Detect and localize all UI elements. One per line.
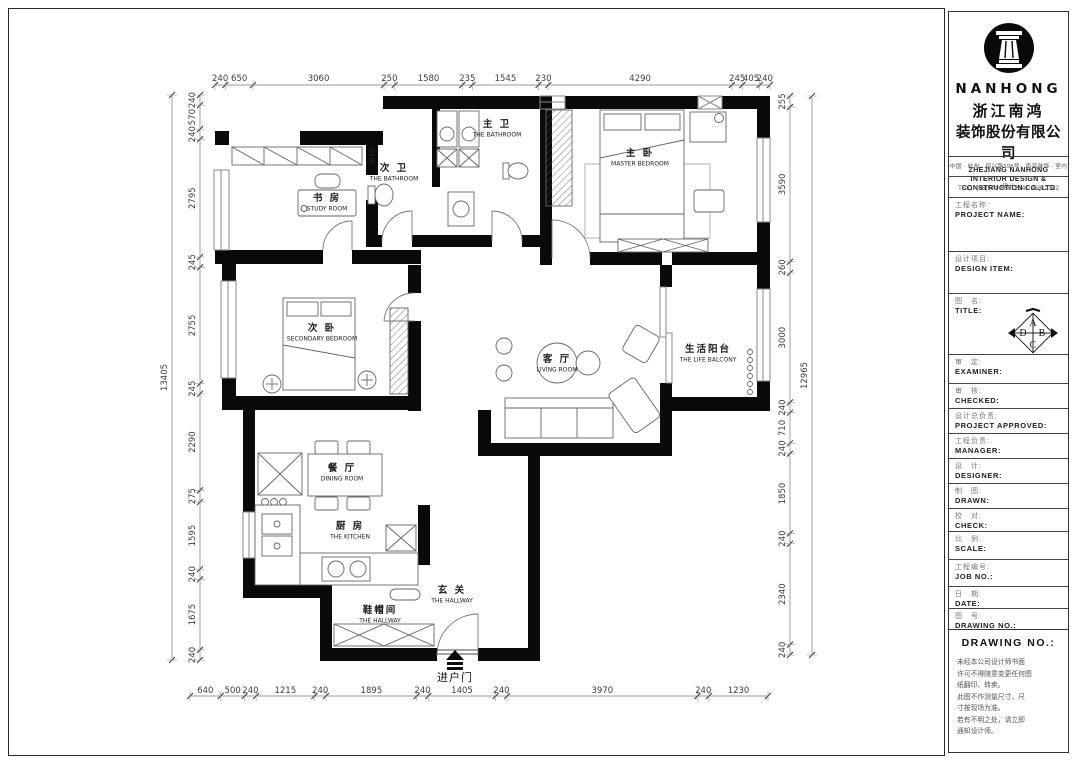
dim-value: 240 [188, 647, 198, 663]
field-label-en: DESIGN ITEM: [955, 264, 1068, 274]
dim-value: 13405 [160, 364, 170, 391]
dim-chain: 2406503060250158023515452304290245405240 [212, 74, 773, 90]
dim-value: 1545 [495, 74, 517, 84]
dim-value: 240 [312, 686, 328, 696]
field-label-zh: 设计总负责: [955, 412, 1068, 421]
dim-value: 570 [188, 109, 198, 125]
room-name-zh: 厨 房 [336, 520, 364, 532]
field-row-manager: 工程负责:MANAGER: [949, 433, 1068, 458]
dimension-annotations: 2406503060250158023515452304290245405240… [160, 74, 817, 701]
dim-value: 275 [188, 488, 198, 504]
field-row-project-approved: 设计总负责:PROJECT APPROVED: [949, 408, 1068, 433]
note-line: 寸按现场为准。 [957, 703, 1064, 715]
field-row-job-no: 工程编号:JOB NO.: [949, 559, 1068, 586]
dim-value: 240 [242, 686, 258, 696]
floor-plan-svg: 2406503060250158023515452304290245405240… [8, 8, 944, 756]
field-row-drawing-no: 图 号:DRAWING NO.: [949, 608, 1068, 629]
field-label-en: PROJECT APPROVED: [955, 421, 1068, 431]
note-line: 许可不得随意变更任何图 [957, 669, 1064, 681]
dim-value: 1850 [778, 483, 788, 505]
room-name-en: THE LIFE BALCONY [679, 357, 737, 364]
logo-text: NANHONG [949, 81, 1068, 97]
orientation-compass-icon: ABCD [1006, 306, 1060, 354]
room-name-zh: 鞋帽间 [363, 604, 398, 616]
dim-value: 710 [778, 420, 788, 436]
note-line: 未经本公司设计师书面 [957, 657, 1064, 669]
dim-value: 240 [414, 686, 430, 696]
dim-value: 1405 [451, 686, 473, 696]
field-row-title: 图 名:TITLE:ABCD [949, 293, 1068, 354]
dim-value: 255 [778, 93, 788, 109]
room-name-en: LIVING ROOM [537, 367, 578, 374]
note-line: 此图不作测量尺寸，尺 [957, 692, 1064, 704]
field-row-project-name: 工程名称:PROJECT NAME: [949, 197, 1068, 251]
dim-value: 240 [493, 686, 509, 696]
dim-chain: 2553590260300024071024018502402340240 [778, 93, 795, 658]
note-line: 若有不明之处，请立即 [957, 715, 1064, 727]
dim-value: 240 [188, 92, 198, 108]
dim-value: 1895 [361, 686, 383, 696]
room-name-en: MASTER BEDROOM [611, 161, 669, 168]
compass-letter: B [1039, 328, 1046, 339]
dim-value: 240 [188, 126, 198, 142]
dim-value: 12965 [800, 362, 810, 389]
field-label-zh: 工程编号: [955, 563, 1068, 572]
room-name-zh: 生活阳台 [685, 343, 731, 355]
furniture [232, 110, 753, 646]
dim-chain: 12965 [800, 93, 817, 658]
column-icon [983, 22, 1035, 74]
field-label-zh: 日 期: [955, 590, 1068, 599]
dim-chain: 6405002401215240189524014052403970240123… [187, 686, 771, 701]
dim-value: 245 [188, 381, 198, 397]
field-label-zh: 设计项目: [955, 255, 1068, 264]
room-name-zh: 次 卧 [308, 322, 336, 334]
compass-letter: A [1029, 318, 1037, 329]
field-label-zh: 工程名称: [955, 201, 1068, 210]
room-label-the-hallway: 玄 关THE HALLWAY [430, 584, 473, 605]
dim-value: 240 [778, 530, 788, 546]
field-label-en: DATE: [955, 599, 1068, 608]
drawing-sheet: 2406503060250158023515452304290245405240… [0, 0, 1080, 764]
dim-value: 240 [778, 440, 788, 456]
dim-value: 3970 [592, 686, 614, 696]
room-name-en: THE BATHROOM [472, 132, 522, 139]
note-line: 纸翻印、转卖。 [957, 680, 1064, 692]
drawing-no-header: DRAWING NO.: [949, 629, 1068, 655]
room-name-en: SECONDARY BEDROOM [287, 336, 357, 343]
field-row-examiner: 审 定:EXAMINER: [949, 354, 1068, 383]
dim-value: 3060 [308, 74, 330, 84]
dim-value: 235 [459, 74, 475, 84]
room-label-the-life-balcony: 生活阳台THE LIFE BALCONY [679, 343, 737, 364]
dim-value: 1230 [728, 686, 750, 696]
dim-value: 240 [188, 566, 198, 582]
room-name-zh: 客 厅 [542, 353, 571, 365]
compass-letter: C [1030, 340, 1037, 351]
dim-value: 4290 [629, 74, 651, 84]
room-name-en: THE KITCHEN [329, 534, 370, 541]
dim-value: 3590 [778, 174, 788, 196]
dim-value: 250 [381, 74, 397, 84]
dim-value: 240 [778, 642, 788, 658]
dim-value: 240 [757, 74, 773, 84]
room-name-zh: 次 卫 [380, 162, 408, 174]
field-label-en: PROJECT NAME: [955, 210, 1068, 220]
field-label-zh: 设 计: [955, 462, 1068, 471]
dim-value: 230 [535, 74, 551, 84]
compass-letter: D [1019, 328, 1026, 339]
field-label-en: DRAWN: [955, 496, 1068, 506]
company-name-zh-1: 浙江南鸿 [949, 100, 1068, 121]
field-label-zh: 比 例: [955, 535, 1068, 544]
room-name-en: THE BATHROOM [369, 176, 419, 183]
field-label-en: DRAWING NO.: [955, 621, 1068, 629]
field-label-en: CHECKED: [955, 396, 1068, 406]
company-logo-block: NANHONG 浙江南鸿 装饰股份有限公司 ZHEJIANG NANHONG I… [949, 12, 1068, 156]
field-row-checked: 审 核:CHECKED: [949, 383, 1068, 408]
field-label-en: CHECK: [955, 521, 1068, 531]
title-block-notes: 未经本公司设计师书面许可不得随意变更任何图纸翻印、转卖。此图不作测量尺寸，尺寸按… [957, 657, 1064, 738]
field-label-zh: 工程负责: [955, 437, 1068, 446]
dim-value: 245 [188, 254, 198, 270]
field-row-design-item: 设计项目:DESIGN ITEM: [949, 251, 1068, 293]
dim-value: 240 [778, 399, 788, 415]
dim-chain: 13405 [160, 92, 177, 663]
room-name-zh: 主 卧 [626, 147, 654, 159]
field-label-en: EXAMINER: [955, 367, 1068, 377]
note-line: 通知设计师。 [957, 726, 1064, 738]
floor-plan-area: 2406503060250158023515452304290245405240… [8, 8, 944, 756]
dim-value: 1580 [418, 74, 440, 84]
field-label-en: DESIGNER: [955, 471, 1068, 481]
dim-value: 2290 [188, 431, 198, 453]
dim-value: 500 [225, 686, 241, 696]
field-label-zh: 制 图: [955, 487, 1068, 496]
dim-value: 240 [695, 686, 711, 696]
dim-value: 1215 [274, 686, 296, 696]
dim-value: 1595 [188, 525, 198, 547]
company-address: 中国 · 杭州 · 绍兴路598号 · 南鸿装饰 · 室内设计 [949, 156, 1068, 176]
dim-value: 2755 [188, 315, 198, 337]
dim-value: 650 [231, 74, 247, 84]
field-label-zh: 审 核: [955, 387, 1068, 396]
title-block-inner-border: NANHONG 浙江南鸿 装饰股份有限公司 ZHEJIANG NANHONG I… [948, 11, 1069, 753]
room-name-zh: 玄 关 [438, 584, 466, 596]
dim-chain: 2405702402795245275524522902751595240167… [188, 92, 205, 663]
title-block-panel: NANHONG 浙江南鸿 装饰股份有限公司 ZHEJIANG NANHONG I… [944, 8, 1072, 756]
room-label-the-hallway: 鞋帽间THE HALLWAY [358, 604, 401, 625]
field-label-zh: 审 定: [955, 358, 1068, 367]
dim-value: 2340 [778, 583, 788, 605]
room-name-zh: 餐 厅 [327, 462, 356, 474]
dim-value: 1675 [188, 604, 198, 626]
room-name-en: THE HALLWAY [358, 618, 401, 625]
room-name-zh: 书 房 [313, 192, 341, 204]
field-row-designer: 设 计:DESIGNER: [949, 458, 1068, 483]
dim-value: 260 [778, 259, 788, 275]
entry-door-label: 进户门 [437, 670, 473, 684]
field-label-en: MANAGER: [955, 446, 1068, 456]
field-row-drawn: 制 图:DRAWN: [949, 483, 1068, 508]
dim-value: 2795 [188, 187, 198, 209]
field-label-zh: 图 号: [955, 612, 1068, 621]
dim-value: 240 [212, 74, 228, 84]
dim-value: 3000 [778, 327, 788, 349]
entry-arrow-icon [446, 650, 464, 670]
room-label-the-kitchen: 厨 房THE KITCHEN [329, 520, 370, 541]
niche-label: 壁龛 [369, 148, 376, 165]
dim-value: 640 [197, 686, 213, 696]
room-name-en: DINING ROOM [321, 476, 363, 483]
field-row-scale: 比 例:SCALE: [949, 531, 1068, 559]
room-name-en: THE HALLWAY [430, 598, 473, 605]
field-label-zh: 图 名: [955, 297, 1068, 306]
field-row-check: 校 对:CHECK: [949, 508, 1068, 531]
room-name-en: STUDY ROOM [307, 206, 348, 213]
field-label-en: SCALE: [955, 544, 1068, 554]
field-label-zh: 校 对: [955, 512, 1068, 521]
field-label-en: JOB NO.: [955, 572, 1068, 582]
field-row-date: 日 期:DATE: [949, 586, 1068, 608]
room-name-zh: 主 卫 [483, 118, 511, 130]
